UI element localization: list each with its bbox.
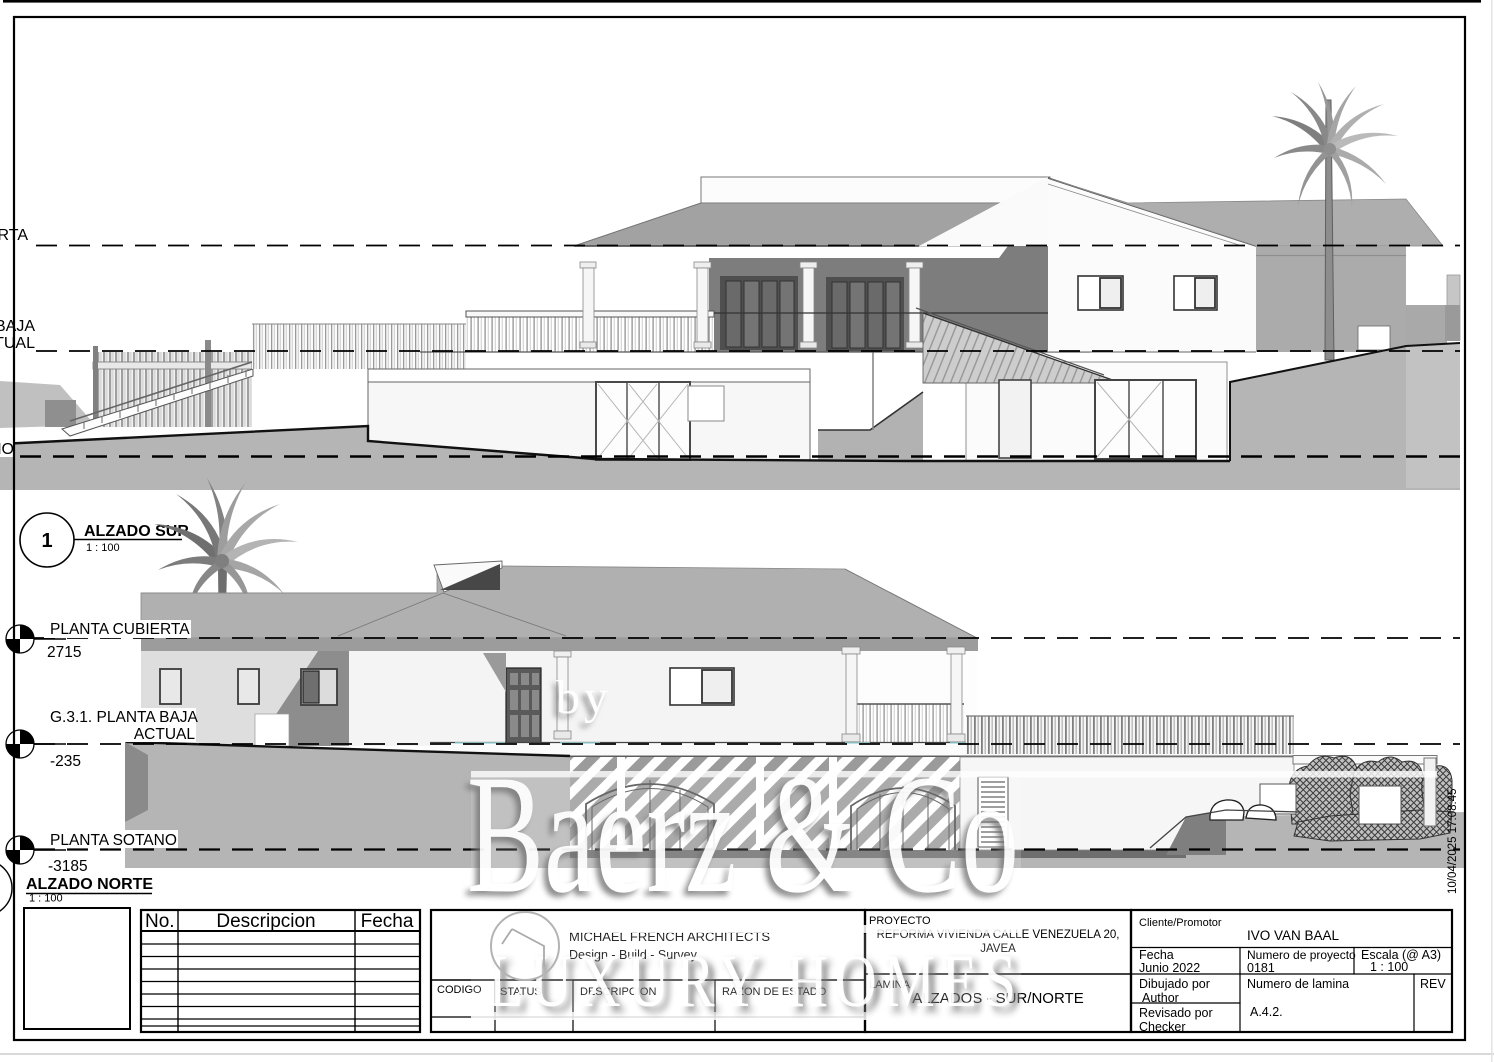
svg-text:Junio 2022: Junio 2022: [1139, 961, 1200, 975]
svg-text:No.: No.: [145, 911, 175, 932]
svg-text:1 : 100: 1 : 100: [86, 542, 120, 554]
svg-text:PLANTA SOTANO: PLANTA SOTANO: [50, 832, 177, 849]
svg-text:Checker: Checker: [1139, 1020, 1186, 1034]
svg-text:A.4.2.: A.4.2.: [1250, 1005, 1283, 1019]
svg-text:2715: 2715: [47, 644, 81, 661]
svg-text:IVO VAN BAAL: IVO VAN BAAL: [1247, 928, 1340, 943]
svg-text:PLANTA SOTANO: PLANTA SOTANO: [0, 441, 14, 458]
svg-text:by: by: [556, 671, 612, 724]
svg-text:Numero de lamina: Numero de lamina: [1247, 977, 1349, 991]
svg-text:Revisado por: Revisado por: [1139, 1006, 1213, 1020]
svg-text:0181: 0181: [1247, 961, 1275, 975]
svg-text:-235: -235: [50, 753, 81, 770]
svg-text:1 : 100: 1 : 100: [29, 893, 63, 905]
svg-text:ALZADO SUR: ALZADO SUR: [84, 523, 189, 540]
svg-text:Author: Author: [1142, 991, 1179, 1005]
svg-text:Descripcion: Descripcion: [216, 911, 315, 932]
svg-text:Baerz & Co: Baerz & Co: [467, 740, 1019, 928]
svg-text:ALZADO NORTE: ALZADO NORTE: [26, 876, 153, 893]
svg-text:Dibujado por: Dibujado por: [1139, 977, 1210, 991]
svg-text:-3185: -3185: [48, 858, 88, 875]
svg-text:PLANTA CUBIERTA: PLANTA CUBIERTA: [50, 621, 190, 638]
svg-text:REV: REV: [1420, 977, 1446, 991]
svg-text:10/04/2025 17:08:45: 10/04/2025 17:08:45: [1447, 788, 1459, 894]
svg-text:ACTUAL: ACTUAL: [0, 335, 35, 352]
svg-text:PLANTA BAJA: PLANTA BAJA: [0, 318, 35, 335]
svg-text:1: 1: [41, 530, 52, 552]
svg-text:Fecha: Fecha: [1139, 948, 1174, 962]
svg-text:Numero de proyecto: Numero de proyecto: [1247, 948, 1356, 962]
svg-text:Fecha: Fecha: [361, 911, 414, 932]
svg-text:1 : 100: 1 : 100: [1370, 960, 1408, 974]
svg-text:Cliente/Promotor: Cliente/Promotor: [1139, 917, 1222, 929]
svg-text:G.3.1. PLANTA BAJA: G.3.1. PLANTA BAJA: [50, 709, 199, 726]
svg-text:ACTUAL: ACTUAL: [134, 726, 196, 743]
